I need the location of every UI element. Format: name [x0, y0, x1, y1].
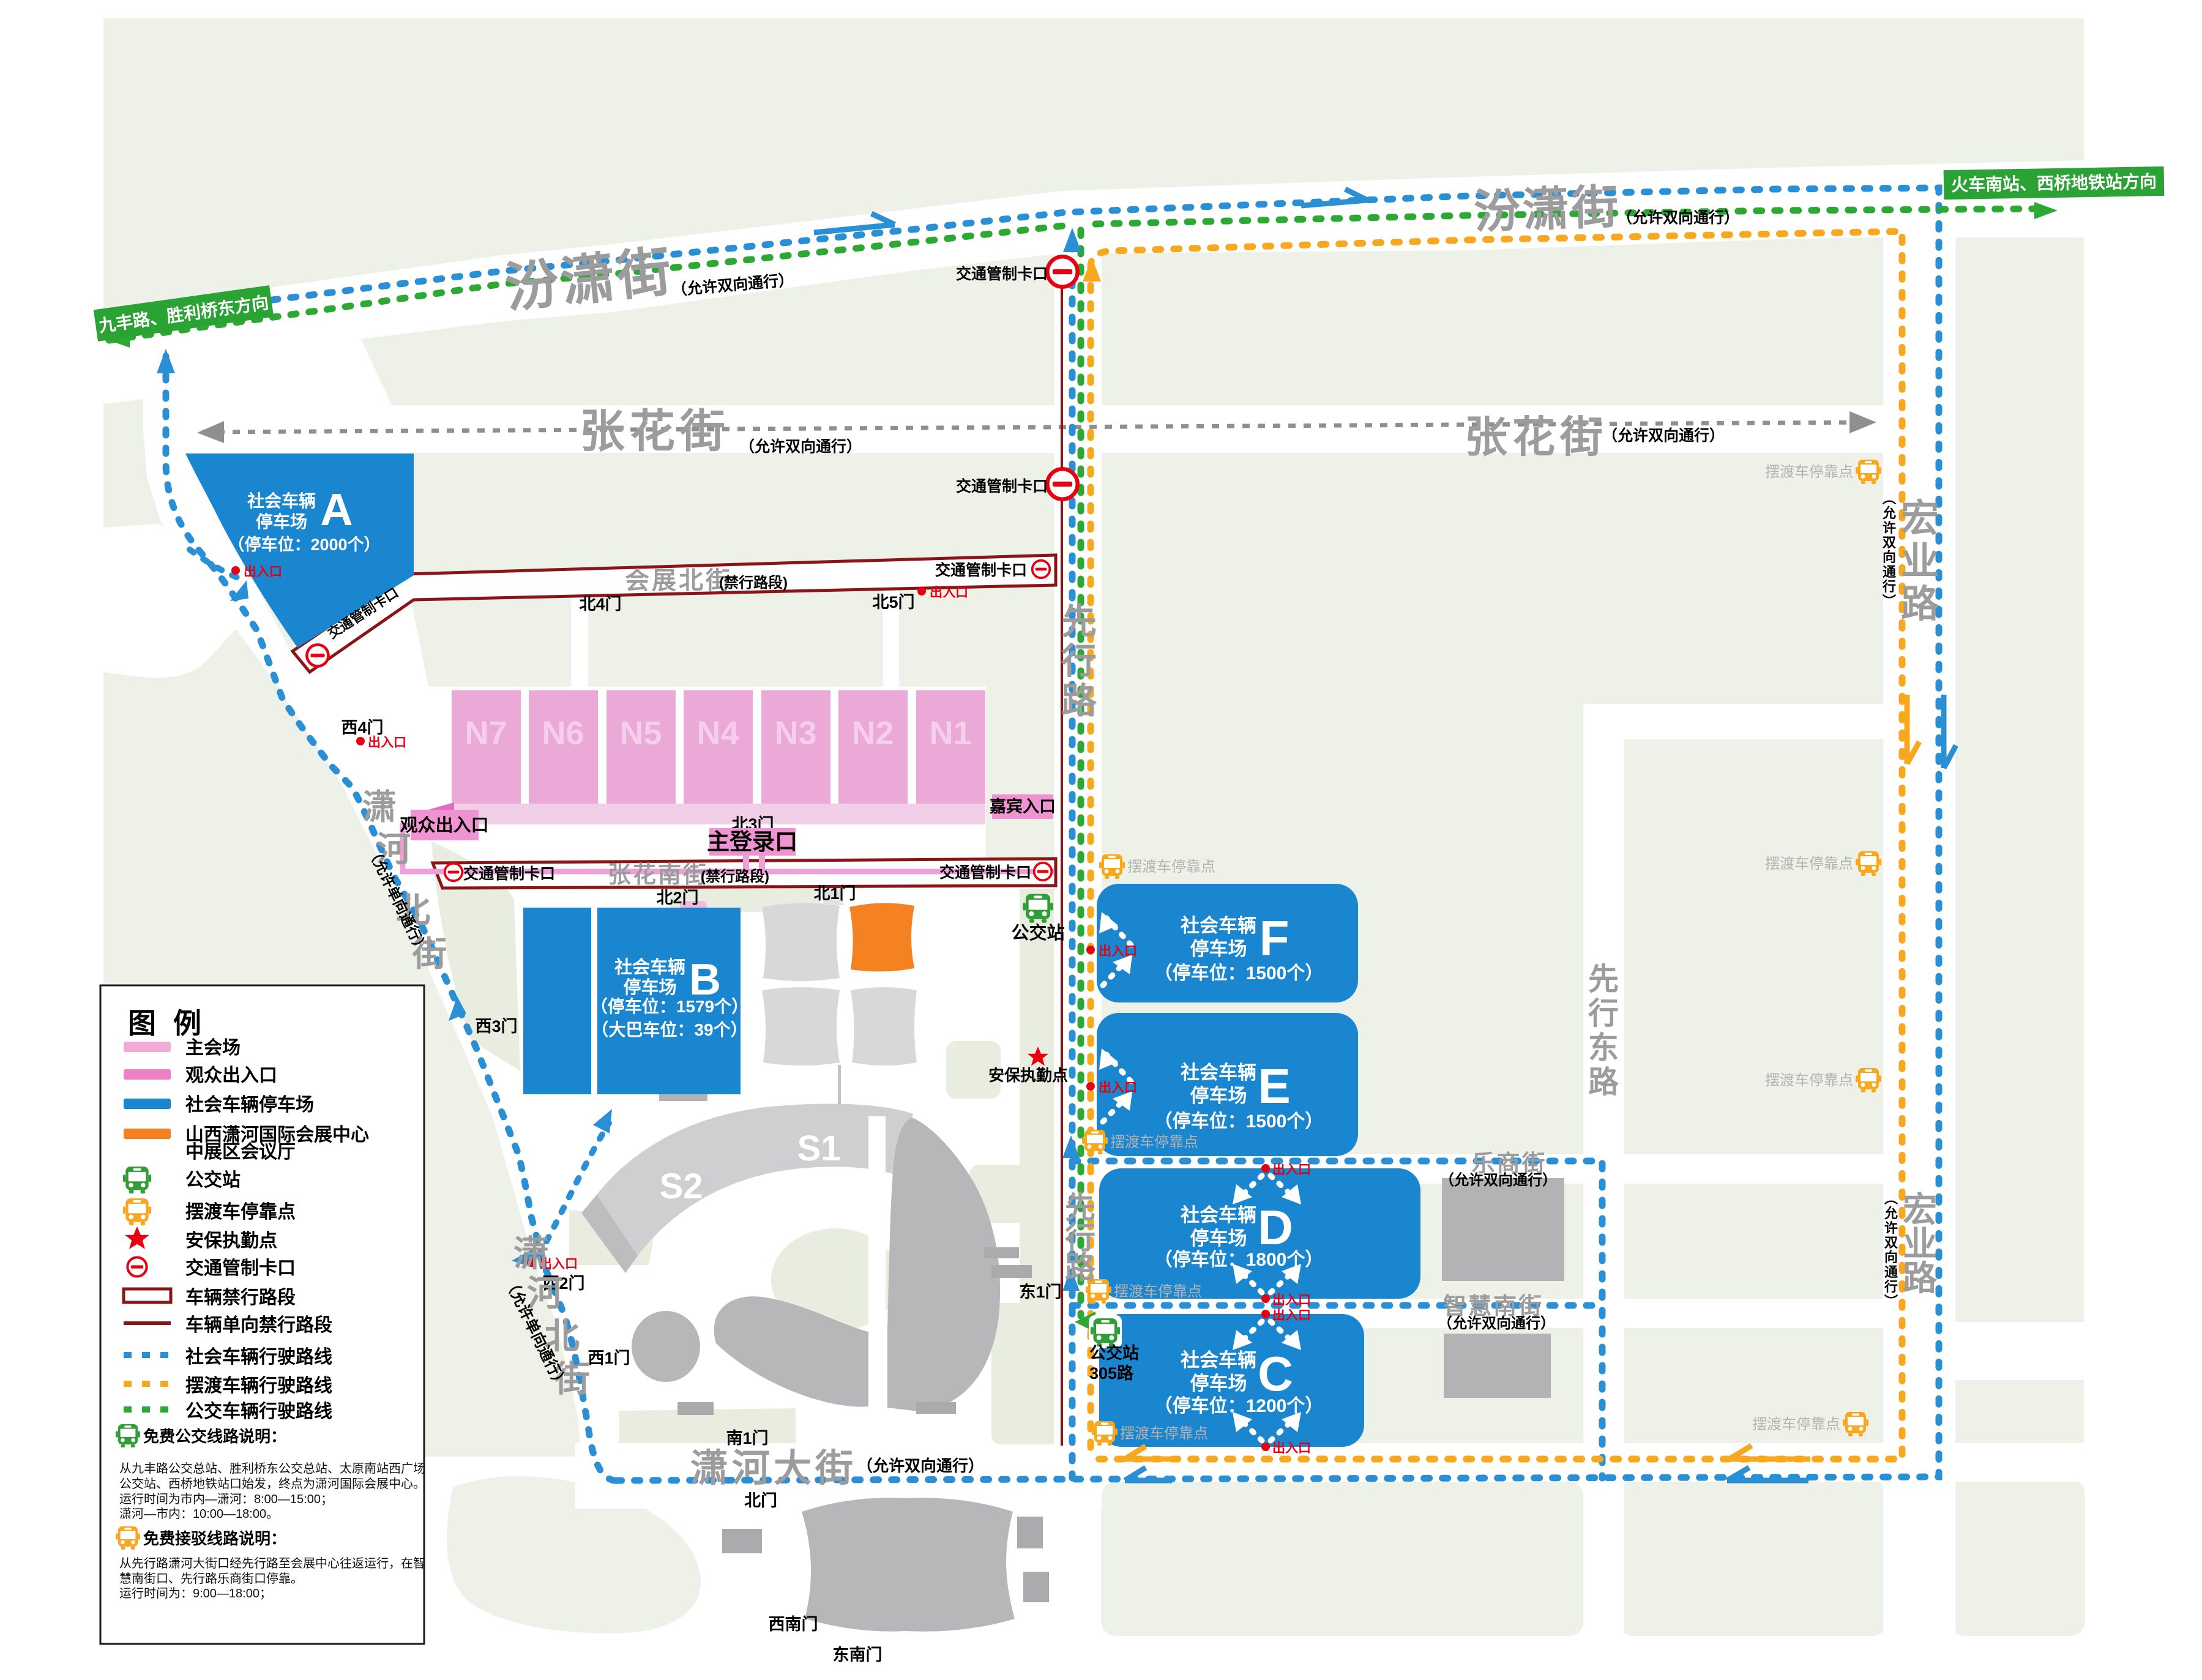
svg-text:社会车辆: 社会车辆 — [614, 957, 685, 977]
svg-text:观众出入口: 观众出入口 — [400, 815, 488, 835]
svg-text:先: 先 — [1065, 1190, 1095, 1225]
svg-text:从先行路潇河大街口经先行路至会展中心往返运行，在智: 从先行路潇河大街口经先行路至会展中心往返运行，在智 — [119, 1556, 425, 1570]
svg-text:双: 双 — [1884, 1235, 1898, 1250]
svg-text:（停车位：1200个）: （停车位：1200个） — [1154, 1395, 1324, 1416]
svg-text:交通管制卡口: 交通管制卡口 — [956, 265, 1048, 283]
svg-text:南1门: 南1门 — [726, 1429, 768, 1447]
svg-text:向: 向 — [1883, 550, 1896, 565]
svg-text:宏: 宏 — [1903, 1190, 1937, 1229]
svg-text:停车场: 停车场 — [256, 512, 307, 531]
svg-text:（允许双向通行）: （允许双向通行） — [1602, 427, 1725, 444]
svg-text:N3: N3 — [774, 715, 816, 752]
svg-text:出入口: 出入口 — [1272, 1441, 1311, 1455]
svg-text:出入口: 出入口 — [1099, 1081, 1137, 1095]
svg-text:先: 先 — [1588, 962, 1619, 996]
svg-text:中展区会议厅: 中展区会议厅 — [185, 1142, 296, 1162]
svg-text:︶: ︶ — [1884, 1294, 1898, 1309]
svg-text:（停车位：1579个）: （停车位：1579个） — [591, 996, 748, 1016]
svg-text:业: 业 — [1901, 540, 1939, 583]
svg-text:出入口: 出入口 — [368, 736, 406, 750]
svg-text:北4门: 北4门 — [579, 595, 621, 613]
svg-text:许: 许 — [1883, 520, 1896, 536]
svg-text:北门: 北门 — [744, 1491, 777, 1510]
svg-text:西3门: 西3门 — [475, 1017, 517, 1036]
svg-text:S2: S2 — [660, 1167, 703, 1206]
svg-text:出入口: 出入口 — [1272, 1163, 1311, 1177]
svg-text:社会车辆: 社会车辆 — [1181, 1062, 1256, 1083]
svg-text:公交站: 公交站 — [185, 1170, 241, 1190]
svg-text:运行时间为：9:00—18:00；: 运行时间为：9:00—18:00； — [119, 1586, 272, 1600]
svg-text:N2: N2 — [851, 715, 894, 752]
svg-text:(禁行路段): (禁行路段) — [701, 868, 769, 885]
svg-text:︵: ︵ — [1884, 1191, 1898, 1206]
svg-text:停车场: 停车场 — [1190, 1228, 1247, 1249]
svg-text:从九丰路公交总站、胜利桥东公交总站、太原南站西广场: 从九丰路公交总站、胜利桥东公交总站、太原南站西广场 — [119, 1462, 425, 1476]
svg-text:双: 双 — [1883, 535, 1896, 550]
svg-text:出入口: 出入口 — [1272, 1293, 1311, 1307]
svg-text:社会车辆停车场: 社会车辆停车场 — [185, 1094, 314, 1115]
svg-text:摆渡车停靠点: 摆渡车停靠点 — [1110, 1134, 1198, 1151]
svg-text:车辆禁行路段: 车辆禁行路段 — [185, 1287, 296, 1308]
svg-text:路: 路 — [1065, 1250, 1096, 1285]
svg-text:摆渡车停靠点: 摆渡车停靠点 — [1752, 1416, 1840, 1433]
svg-text:社会车辆: 社会车辆 — [247, 491, 316, 510]
svg-text:（允许双向通行）: （允许双向通行） — [1617, 209, 1739, 226]
svg-text:通: 通 — [1883, 564, 1896, 580]
svg-text:交通管制卡口: 交通管制卡口 — [935, 561, 1027, 579]
svg-text:行: 行 — [1882, 579, 1896, 594]
svg-text:路: 路 — [1588, 1065, 1619, 1099]
svg-text:允: 允 — [1884, 1206, 1898, 1221]
svg-text:主登录口: 主登录口 — [707, 829, 797, 854]
svg-text:C: C — [1258, 1346, 1293, 1401]
svg-text:东南门: 东南门 — [833, 1645, 883, 1664]
svg-text:嘉宾入口: 嘉宾入口 — [990, 797, 1056, 816]
svg-text:允: 允 — [1882, 506, 1896, 521]
svg-text:停车场: 停车场 — [1190, 938, 1247, 960]
svg-text:出入口: 出入口 — [244, 565, 282, 579]
svg-text:北5门: 北5门 — [872, 593, 914, 611]
svg-text:交通管制卡口: 交通管制卡口 — [956, 477, 1048, 495]
svg-text:安保执勤点: 安保执勤点 — [988, 1066, 1068, 1085]
svg-text:︵: ︵ — [1883, 491, 1896, 506]
svg-text:北2门: 北2门 — [656, 889, 698, 907]
svg-text:公交站: 公交站 — [1011, 922, 1064, 943]
svg-text:潇河大街: 潇河大街 — [690, 1447, 857, 1490]
svg-text:行: 行 — [1884, 1279, 1898, 1294]
svg-text:火车南站、西桥地铁站方向: 火车南站、西桥地铁站方向 — [1951, 171, 2157, 195]
svg-text:(禁行路段): (禁行路段) — [719, 574, 788, 591]
svg-text:车辆单向禁行路段: 车辆单向禁行路段 — [185, 1315, 332, 1335]
svg-text:北1门: 北1门 — [813, 884, 856, 903]
svg-text:停车场: 停车场 — [623, 977, 676, 998]
svg-text:公交车辆行驶路线: 公交车辆行驶路线 — [185, 1401, 332, 1422]
svg-text:路: 路 — [1903, 1259, 1938, 1297]
svg-text:西南门: 西南门 — [769, 1615, 818, 1633]
svg-text:免费接驳线路说明：: 免费接驳线路说明： — [143, 1529, 286, 1548]
svg-text:E: E — [1258, 1059, 1290, 1113]
svg-text:社会车辆: 社会车辆 — [1181, 1204, 1256, 1226]
svg-text:许: 许 — [1884, 1220, 1898, 1236]
svg-text:东: 东 — [1588, 1031, 1619, 1065]
svg-text:汾潇街: 汾潇街 — [1473, 182, 1622, 238]
svg-text:潇: 潇 — [513, 1234, 549, 1274]
svg-text:摆渡车停靠点: 摆渡车停靠点 — [1120, 1425, 1208, 1442]
svg-text:摆渡车停靠点: 摆渡车停靠点 — [1127, 859, 1215, 875]
svg-text:会展北街: 会展北街 — [625, 567, 733, 594]
svg-text:（大巴车位：39个）: （大巴车位：39个） — [591, 1020, 747, 1039]
svg-text:摆渡车停靠点: 摆渡车停靠点 — [1765, 464, 1853, 480]
svg-text:行: 行 — [1588, 996, 1619, 1031]
svg-text:东1门: 东1门 — [1019, 1282, 1061, 1301]
svg-text:运行时间为市内—潇河：8:00—15:00；: 运行时间为市内—潇河：8:00—15:00； — [119, 1492, 333, 1506]
svg-text:出入口: 出入口 — [1272, 1309, 1311, 1323]
svg-text:向: 向 — [1884, 1250, 1898, 1265]
svg-text:停车场: 停车场 — [1190, 1373, 1247, 1394]
svg-text:交通管制卡口: 交通管制卡口 — [939, 864, 1031, 881]
svg-text:（停车位：1500个）: （停车位：1500个） — [1154, 963, 1324, 984]
svg-text:A: A — [320, 484, 353, 535]
svg-text:N6: N6 — [542, 715, 584, 752]
svg-text:主会场: 主会场 — [185, 1038, 241, 1058]
svg-text:潇: 潇 — [362, 788, 397, 826]
svg-text:（允许双向通行）: （允许双向通行） — [739, 438, 862, 455]
svg-text:社会车辆: 社会车辆 — [1181, 915, 1256, 936]
svg-text:张花街: 张花街 — [1465, 414, 1608, 461]
svg-text:路: 路 — [1061, 681, 1097, 721]
svg-text:观众出入口: 观众出入口 — [185, 1066, 277, 1086]
svg-text:摆渡车停靠点: 摆渡车停靠点 — [1765, 856, 1853, 872]
svg-text:N5: N5 — [619, 715, 662, 752]
svg-text:交通管制卡口: 交通管制卡口 — [185, 1258, 296, 1279]
svg-text:业: 业 — [1903, 1225, 1937, 1263]
svg-text:公交站、西桥地铁站口始发，终点为潇河国际会展中心。: 公交站、西桥地铁站口始发，终点为潇河国际会展中心。 — [119, 1477, 425, 1491]
svg-text:N4: N4 — [696, 715, 739, 752]
svg-text:（允许双向通行）: （允许双向通行） — [1439, 1171, 1557, 1189]
svg-text:路: 路 — [1901, 583, 1939, 625]
svg-text:社会车辆行驶路线: 社会车辆行驶路线 — [185, 1346, 332, 1367]
svg-text:公交站: 公交站 — [1089, 1343, 1139, 1362]
svg-text:（允许双向通行）: （允许双向通行） — [1438, 1315, 1555, 1332]
svg-text:张花街: 张花街 — [580, 407, 730, 457]
svg-text:免费公交线路说明：: 免费公交线路说明： — [143, 1427, 286, 1446]
svg-text:（停车位：2000个）: （停车位：2000个） — [228, 535, 380, 554]
svg-text:停车场: 停车场 — [1190, 1085, 1247, 1107]
svg-text:通: 通 — [1884, 1264, 1898, 1280]
svg-text:N7: N7 — [465, 715, 507, 752]
svg-text:图例: 图例 — [128, 1007, 218, 1039]
svg-text:305路: 305路 — [1089, 1364, 1134, 1383]
svg-text:社会车辆: 社会车辆 — [1181, 1350, 1256, 1371]
svg-text:摆渡车辆行驶路线: 摆渡车辆行驶路线 — [185, 1375, 332, 1396]
svg-text:慧南街口、先行路乐商街口停靠。: 慧南街口、先行路乐商街口停靠。 — [119, 1572, 303, 1586]
svg-text:摆渡车停靠点: 摆渡车停靠点 — [1114, 1283, 1202, 1300]
svg-text:出入口: 出入口 — [1099, 944, 1137, 958]
svg-text:D: D — [1258, 1200, 1293, 1255]
svg-text:（允许双向通行）: （允许双向通行） — [857, 1457, 984, 1475]
svg-text:张花南街: 张花南街 — [608, 862, 708, 888]
svg-text:出入口: 出入口 — [930, 586, 968, 600]
svg-text:（停车位：1500个）: （停车位：1500个） — [1154, 1111, 1324, 1132]
svg-text:先: 先 — [1061, 602, 1097, 641]
svg-text:宏: 宏 — [1901, 498, 1939, 540]
svg-text:交通管制卡口: 交通管制卡口 — [463, 865, 555, 883]
svg-text:S1: S1 — [797, 1129, 841, 1168]
svg-text:F: F — [1260, 911, 1289, 965]
svg-text:西4门: 西4门 — [341, 719, 383, 737]
svg-text:行: 行 — [1061, 641, 1097, 681]
svg-text:安保执勤点: 安保执勤点 — [185, 1231, 277, 1251]
svg-text:摆渡车停靠点: 摆渡车停靠点 — [1765, 1072, 1853, 1089]
svg-text:︶: ︶ — [1883, 594, 1896, 609]
svg-text:潇河—市内：10:00—18:00。: 潇河—市内：10:00—18:00。 — [119, 1507, 278, 1521]
svg-text:西1门: 西1门 — [588, 1349, 630, 1367]
svg-text:摆渡车停靠点: 摆渡车停靠点 — [185, 1201, 296, 1222]
svg-text:N1: N1 — [929, 715, 971, 752]
